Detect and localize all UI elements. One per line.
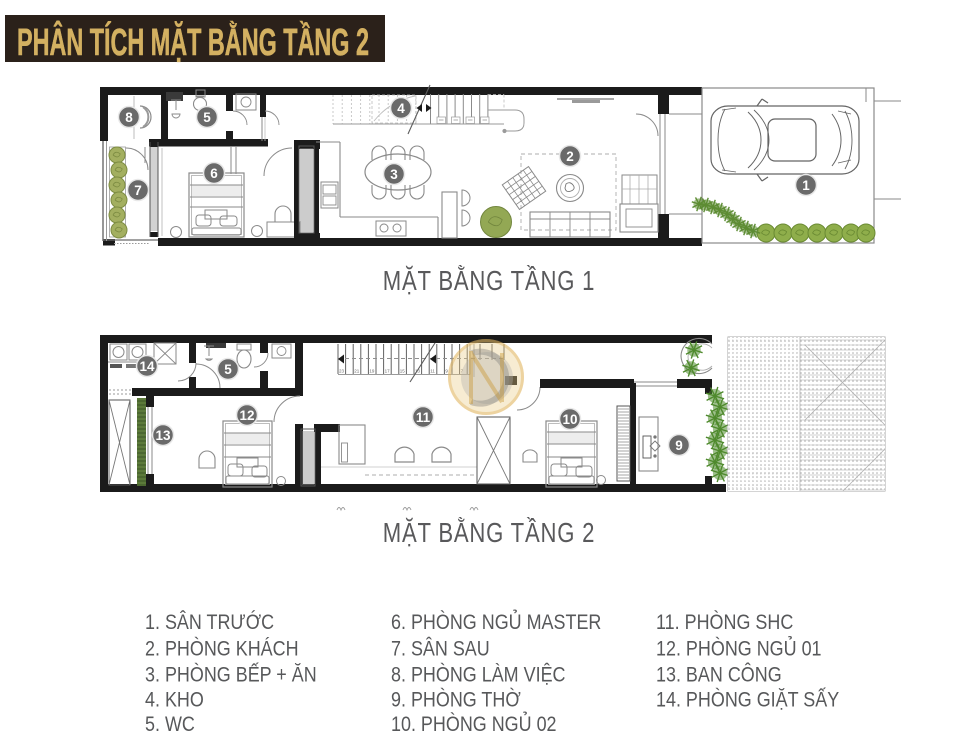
svg-text:11. PHÒNG SHC: 11. PHÒNG SHC [656,609,793,634]
svg-text:9: 9 [445,369,448,374]
svg-text:1. SÂN TRƯỚC: 1. SÂN TRƯỚC [145,609,274,634]
svg-text:6: 6 [210,166,218,181]
svg-text:9: 9 [675,438,683,453]
svg-text:10: 10 [562,412,577,427]
svg-text:13. BAN CÔNG: 13. BAN CÔNG [656,662,782,687]
svg-text:7: 7 [134,183,142,198]
svg-text:23: 23 [339,369,345,374]
svg-text:3. PHÒNG BẾP + ĂN: 3. PHÒNG BẾP + ĂN [145,662,317,687]
svg-text:8. PHÒNG LÀM VIỆC: 8. PHÒNG LÀM VIỆC [391,662,566,687]
svg-text:2: 2 [566,149,574,164]
svg-text:6. PHÒNG NGỦ MASTER: 6. PHÒNG NGỦ MASTER [391,608,601,634]
svg-text:9. PHÒNG THỜ: 9. PHÒNG THỜ [391,687,521,712]
svg-text:14: 14 [139,359,155,374]
svg-text:8: 8 [125,110,133,125]
svg-text:10. PHÒNG NGỦ 02: 10. PHÒNG NGỦ 02 [391,710,557,736]
svg-text:3: 3 [390,167,398,182]
svg-text:7. SÂN SAU: 7. SÂN SAU [391,636,490,661]
svg-text:5: 5 [203,110,211,125]
svg-text:MẶT BẰNG TẦNG 1: MẶT BẰNG TẦNG 1 [383,263,596,296]
svg-text:1: 1 [802,178,810,193]
svg-text:21: 21 [354,369,360,374]
svg-text:PHÂN TÍCH MẶT BẰNG TẦNG 2: PHÂN TÍCH MẶT BẰNG TẦNG 2 [17,20,369,64]
svg-text:15: 15 [400,369,406,374]
svg-text:12: 12 [239,408,254,423]
svg-text:13: 13 [415,369,421,374]
svg-text:2. PHÒNG KHÁCH: 2. PHÒNG KHÁCH [145,636,299,661]
svg-text:14. PHÒNG GIẶT SẤY: 14. PHÒNG GIẶT SẤY [656,687,839,712]
svg-text:11: 11 [430,369,435,374]
svg-text:5: 5 [224,362,232,377]
svg-text:17: 17 [385,369,391,374]
svg-text:4: 4 [397,101,405,116]
svg-text:MẶT BẰNG TẦNG 2: MẶT BẰNG TẦNG 2 [383,515,596,548]
svg-text:5. WC: 5. WC [145,713,195,737]
svg-text:19: 19 [369,369,375,374]
svg-text:4. KHO: 4. KHO [145,688,204,712]
svg-text:13: 13 [155,428,171,443]
svg-text:11: 11 [416,410,431,425]
svg-text:12. PHÒNG NGỦ 01: 12. PHÒNG NGỦ 01 [656,635,822,661]
